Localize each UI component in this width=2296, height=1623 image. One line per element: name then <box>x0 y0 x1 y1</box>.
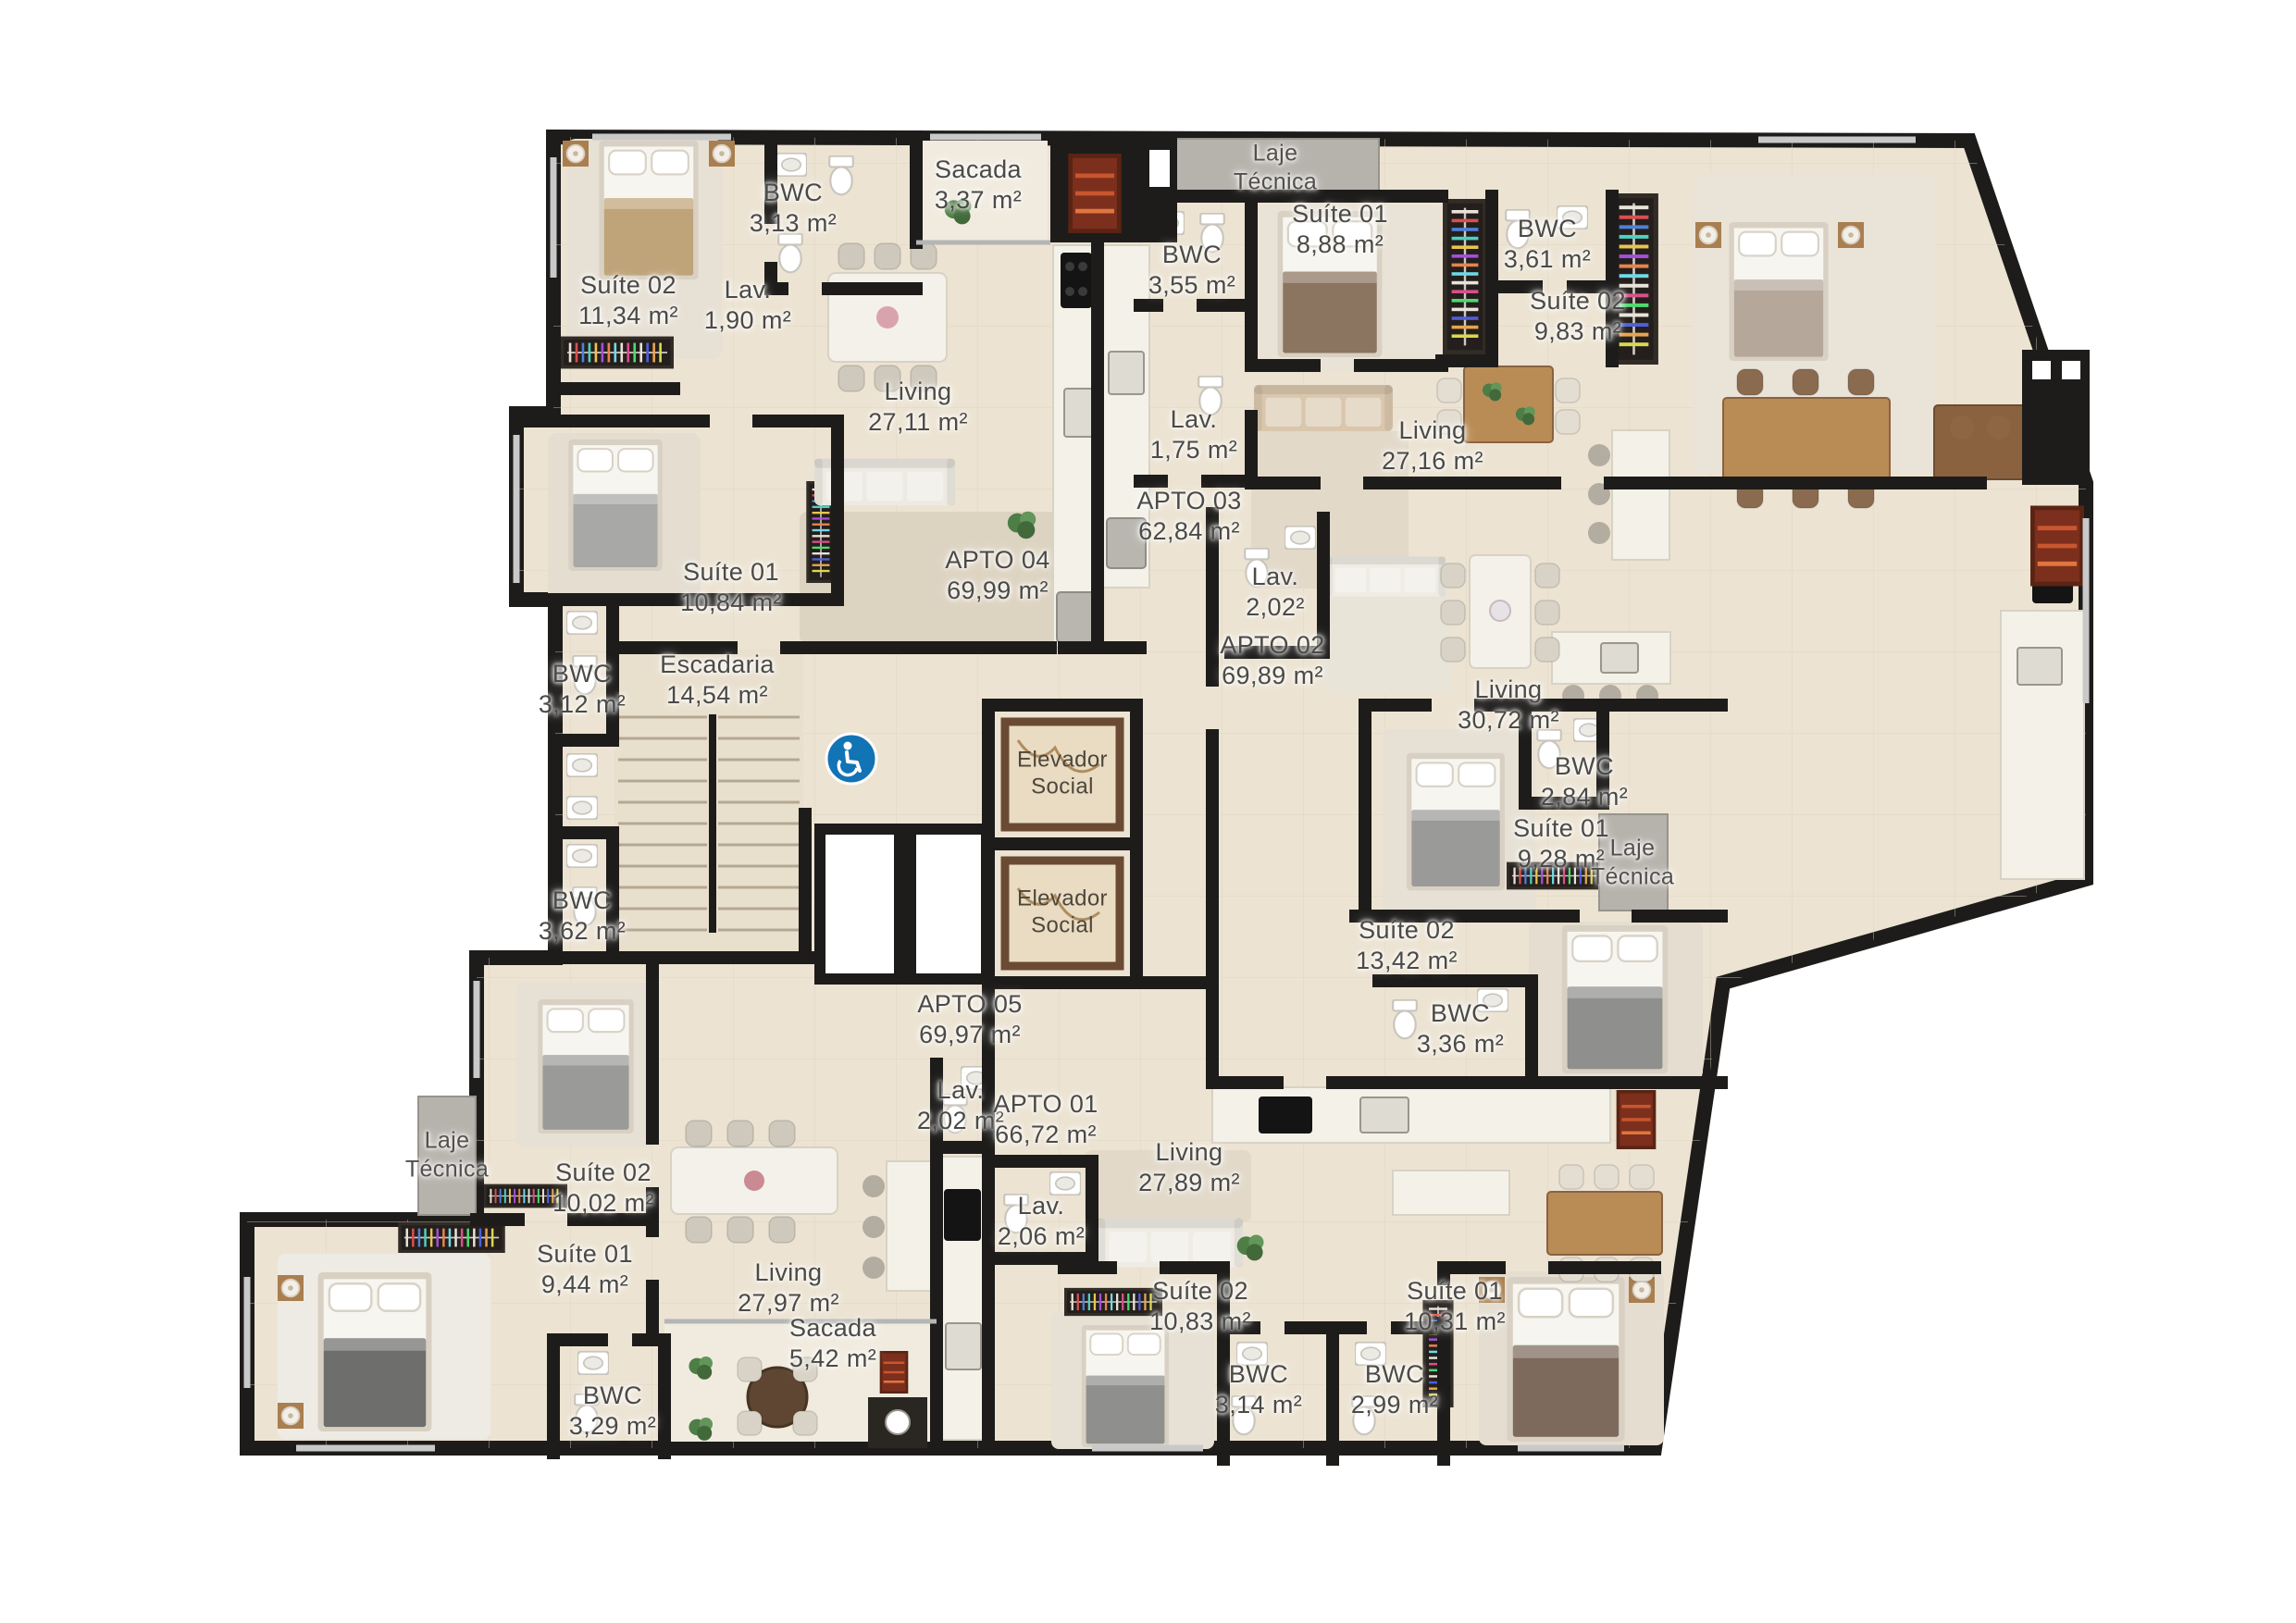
label-living-2789: Living27,89 m² <box>1138 1137 1240 1198</box>
bed <box>599 141 698 279</box>
dining-table-wood <box>1723 398 1890 479</box>
grill-icon <box>880 1351 909 1394</box>
label-escadaria: Escadaria14,54 m² <box>660 650 775 711</box>
flowers <box>1490 601 1510 621</box>
sofa <box>1254 385 1393 431</box>
nightstand <box>709 141 735 167</box>
label-lav-202-apto02: Lav.2,02² <box>1246 562 1305 623</box>
label-suite02-apto04: Suíte 0211,34 m² <box>578 270 678 331</box>
bed <box>1729 222 1828 361</box>
bed <box>1082 1325 1169 1447</box>
bed <box>1562 925 1668 1073</box>
label-bwc-312: BWC3,12 m² <box>539 659 626 720</box>
label-bwc-355: BWC3,55 m² <box>1148 240 1235 301</box>
label-suite01-1084: Suíte 0110,84 m² <box>680 557 782 618</box>
nightstand <box>1695 222 1721 248</box>
nightstand <box>563 141 589 167</box>
sofa <box>1325 556 1446 596</box>
label-suite01-944: Suíte 019,44 m² <box>537 1239 633 1300</box>
label-laje-tecnica-left: LajeTécnica <box>405 1127 489 1183</box>
nightstand <box>1838 222 1864 248</box>
label-apto-01: APTO 0166,72 m² <box>993 1089 1098 1150</box>
void-shafts <box>820 829 987 979</box>
wardrobe <box>1064 1288 1162 1316</box>
label-bwc-361: BWC3,61 m² <box>1504 214 1591 275</box>
label-bwc-314: BWC3,14 m² <box>1215 1359 1302 1420</box>
floor-plan-page: Suíte 0211,34 m² BWC3,13 m² Lav.1,90 m² … <box>0 0 2296 1623</box>
bed <box>538 999 634 1134</box>
wardrobe <box>561 337 674 369</box>
wheelchair-icon <box>826 734 876 784</box>
label-apto-05: APTO 0569,97 m² <box>917 989 1022 1050</box>
dining-table-wood <box>1547 1192 1662 1255</box>
label-bwc-299: BWC2,99 m² <box>1351 1359 1438 1420</box>
bed <box>568 440 662 571</box>
flowers <box>744 1171 764 1191</box>
label-suite02-1083: Suíte 0210,83 m² <box>1149 1276 1251 1337</box>
label-sacada-337: Sacada3,37 m² <box>935 155 1022 216</box>
grill-icon <box>1068 154 1121 233</box>
label-laje-tecnica-right: LajeTécnica <box>1591 835 1674 891</box>
bed <box>1407 753 1505 890</box>
label-bwc-336: BWC3,36 m² <box>1417 998 1504 1059</box>
nightstand <box>278 1403 304 1429</box>
bed <box>318 1272 432 1431</box>
grill-icon <box>1617 1090 1657 1149</box>
label-lav-190: Lav.1,90 m² <box>704 275 791 336</box>
label-apto-03: APTO 0362,84 m² <box>1136 486 1241 547</box>
label-bwc-313: BWC3,13 m² <box>750 178 837 239</box>
label-suite02-1002: Suíte 0210,02 m² <box>552 1158 654 1219</box>
label-lav-202-apto05: Lav.2,02 m² <box>917 1075 1004 1136</box>
nightstand <box>278 1275 304 1301</box>
label-living-2711: Living27,11 m² <box>868 377 968 438</box>
sofa <box>1097 1219 1243 1268</box>
label-sacada-542: Sacada5,42 m² <box>789 1313 876 1374</box>
label-laje-tecnica-top: LajeTécnica <box>1234 140 1317 196</box>
label-suite01-888: Suíte 018,88 m² <box>1292 199 1388 260</box>
wardrobe <box>398 1222 505 1253</box>
wardrobe <box>1443 199 1487 354</box>
label-apto-04: APTO 0469,99 m² <box>945 545 1049 606</box>
label-suite01-1031: Suíte 0110,31 m² <box>1404 1276 1506 1337</box>
label-lav-206: Lav.2,06 m² <box>998 1191 1085 1252</box>
label-bwc-329: BWC3,29 m² <box>569 1381 656 1442</box>
label-suite02-1342: Suíte 0213,42 m² <box>1356 915 1458 976</box>
label-suite02-983: Suíte 029,83 m² <box>1530 286 1626 347</box>
label-elevador-social-2: ElevadorSocial <box>1017 886 1108 940</box>
flowers <box>876 306 899 328</box>
label-living-2716: Living27,16 m² <box>1382 415 1483 477</box>
bed <box>1507 1277 1624 1442</box>
label-living-2797: Living27,97 m² <box>738 1258 839 1319</box>
label-living-3072: Living30,72 m² <box>1458 675 1559 736</box>
grill-icon <box>2030 506 2084 587</box>
label-lav-175: Lav.1,75 m² <box>1150 404 1237 465</box>
label-apto-02: APTO 0269,89 m² <box>1220 630 1324 691</box>
label-bwc-284: BWC2,84 m² <box>1541 751 1628 812</box>
label-elevador-social-1: ElevadorSocial <box>1017 747 1108 801</box>
label-bwc-362: BWC3,62 m² <box>539 886 626 947</box>
